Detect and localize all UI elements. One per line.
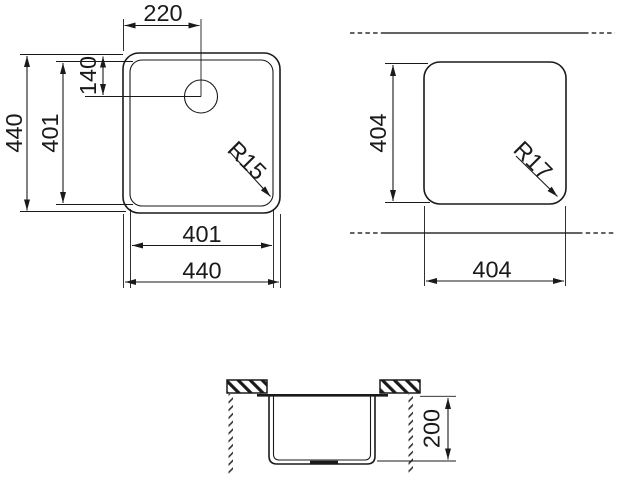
radius-callout-r15: R15: [223, 136, 272, 196]
cutout-view: 404 R17 404: [350, 33, 615, 286]
dimension-faucet-offset-x: 220: [124, 0, 200, 51]
dimension-faucet-offset-y: 140: [75, 56, 103, 95]
cutout-outline: [424, 62, 566, 204]
sink-outer-outline: [123, 53, 280, 213]
dimension-cutout-height: 404: [365, 64, 430, 203]
sink-bowl-outline: [130, 60, 273, 206]
dimension-outer-width: 440: [125, 258, 279, 284]
bowl-outer-wall: [269, 397, 375, 465]
worktop-section-right: [380, 380, 420, 393]
dimension-label: 140: [75, 56, 101, 95]
dimension-bowl-width: 401: [132, 221, 272, 247]
cabinet-wall-left: [229, 394, 234, 474]
sink-technical-drawing: 220 440 401 140 R15: [0, 0, 619, 477]
dimension-cutout-width: 404: [425, 206, 566, 286]
section-view: 200: [227, 380, 456, 474]
dimension-label: 440: [182, 258, 221, 284]
cabinet-wall-right: [409, 394, 414, 474]
radius-callout-r17: R17: [509, 136, 558, 196]
radius-label: R15: [223, 136, 272, 185]
dimension-label: 220: [143, 0, 182, 26]
dimension-label: 401: [37, 113, 63, 152]
dimension-label: 401: [182, 221, 221, 247]
dimension-bowl-depth: 200: [377, 396, 456, 461]
worktop-section-left: [227, 380, 267, 393]
dimension-label: 440: [1, 113, 27, 152]
dimension-label: 404: [472, 257, 511, 283]
bowl-inner-wall: [274, 397, 371, 461]
dimension-label: 200: [419, 409, 445, 448]
radius-label: R17: [509, 136, 558, 185]
dimension-label: 404: [365, 113, 391, 152]
top-view: 220 440 401 140 R15: [1, 0, 281, 288]
technical-drawing-page: 220 440 401 140 R15: [0, 0, 619, 477]
